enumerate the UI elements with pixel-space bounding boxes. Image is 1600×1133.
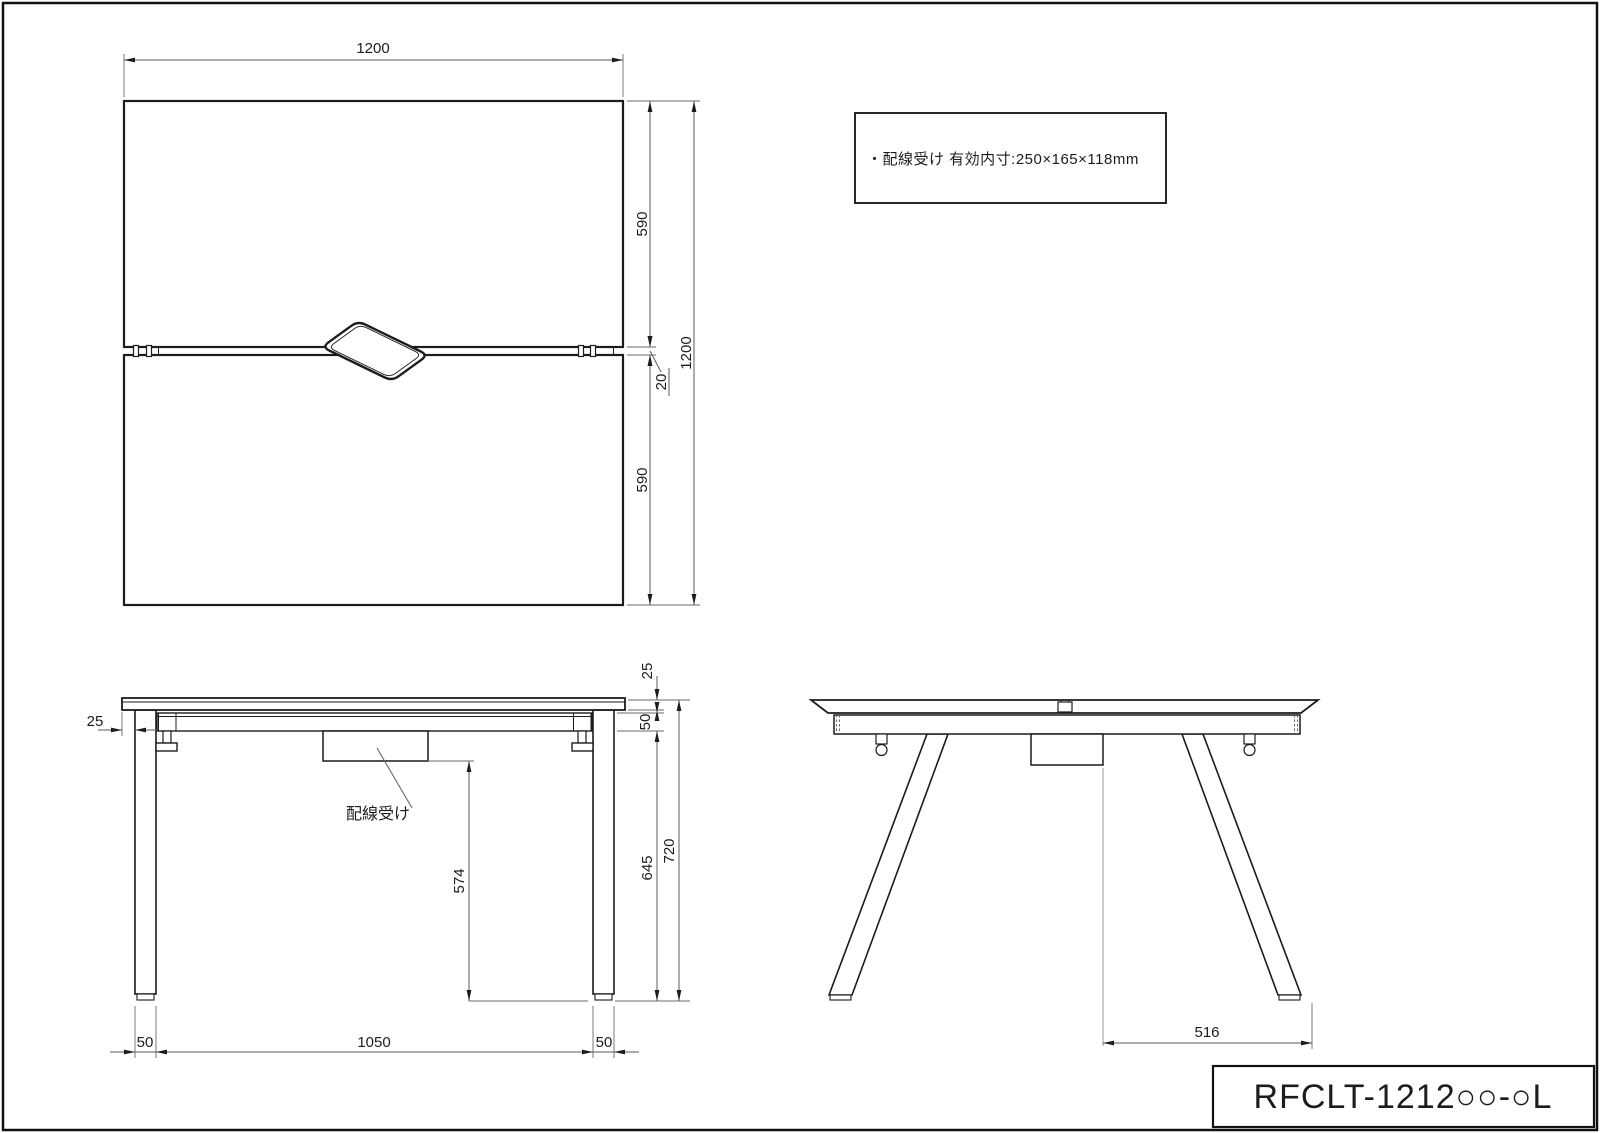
front-view: 配線受け 25 25 50 645 720 [87,663,690,1058]
side-left-leg [829,734,948,995]
dim-left-leg-width: 50 [137,1034,154,1051]
side-view-dimensions: 516 [1103,768,1312,1049]
side-left-foot [830,995,851,1000]
dim-top-overhang: 25 [87,713,104,730]
cable-tray-label: 配線受け [346,805,410,823]
side-right-leg [1182,734,1301,995]
side-right-foot [1279,995,1300,1000]
cad-drawing: 1200 590 590 20 1200 [0,0,1600,1133]
dim-top-thickness: 25 [639,663,656,680]
front-right-leg [593,710,614,994]
dim-frame-height: 50 [637,714,654,731]
side-cable-tray [1031,734,1103,765]
front-left-foot [137,994,154,1000]
top-view: 1200 590 590 20 1200 [124,40,700,605]
dim-foot-span: 516 [1194,1024,1219,1041]
front-tabletop [122,698,625,710]
dim-lower-half: 590 [634,467,651,492]
front-right-foot [595,994,612,1000]
dim-center-gap: 20 [653,374,670,391]
front-cable-tray [323,731,428,761]
dim-upper-half: 590 [634,211,651,236]
dim-top-width: 1200 [356,40,389,57]
tabletop-upper-half [124,101,623,347]
dim-right-leg-width: 50 [596,1034,613,1051]
note-box: ・配線受け 有効内寸:250×165×118mm [855,113,1166,203]
note-text: ・配線受け 有効内寸:250×165×118mm [867,151,1139,168]
dim-overall-height: 720 [661,838,678,863]
dim-tray-to-floor: 574 [451,868,468,893]
side-view: 516 [811,700,1318,1049]
front-left-leg [135,710,156,994]
tabletop-joint-connector [1058,702,1072,712]
title-block: RFCLT-1212○○-○L [1213,1066,1594,1127]
front-frame-rail [157,713,592,731]
side-frame-rail [834,715,1300,734]
dim-total-depth: 1200 [678,336,695,369]
dim-under-frame-to-floor: 645 [639,855,656,880]
dim-leg-span: 1050 [357,1034,390,1051]
tabletop-lower-half [124,355,623,605]
model-number: RFCLT-1212○○-○L [1254,1078,1553,1116]
drawing-sheet: 1200 590 590 20 1200 [0,0,1600,1133]
